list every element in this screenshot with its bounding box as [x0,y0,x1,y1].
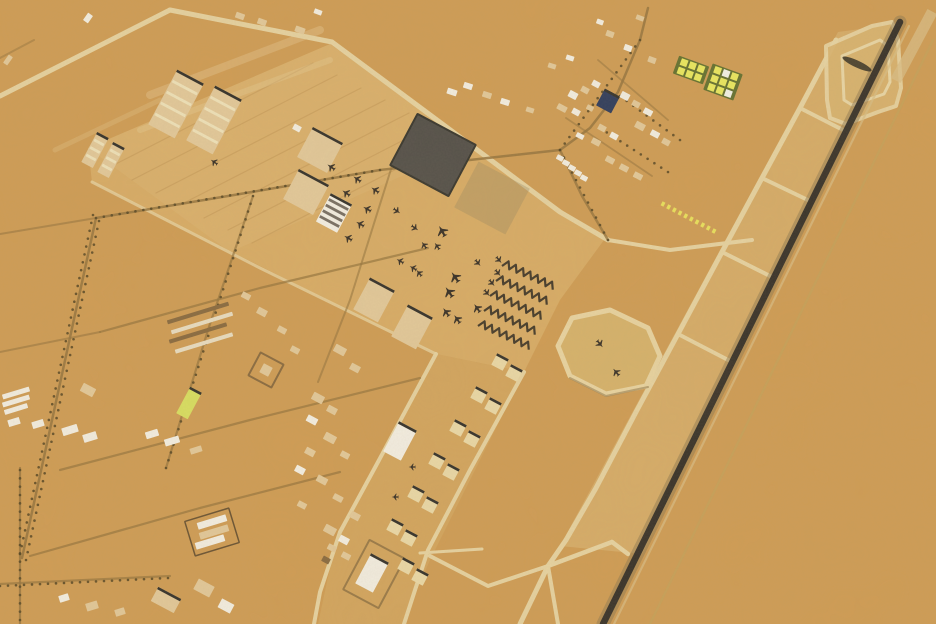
satellite-image [0,0,936,624]
sensor-grain-overlay [0,0,936,624]
satellite-photo-airbase [0,0,936,624]
